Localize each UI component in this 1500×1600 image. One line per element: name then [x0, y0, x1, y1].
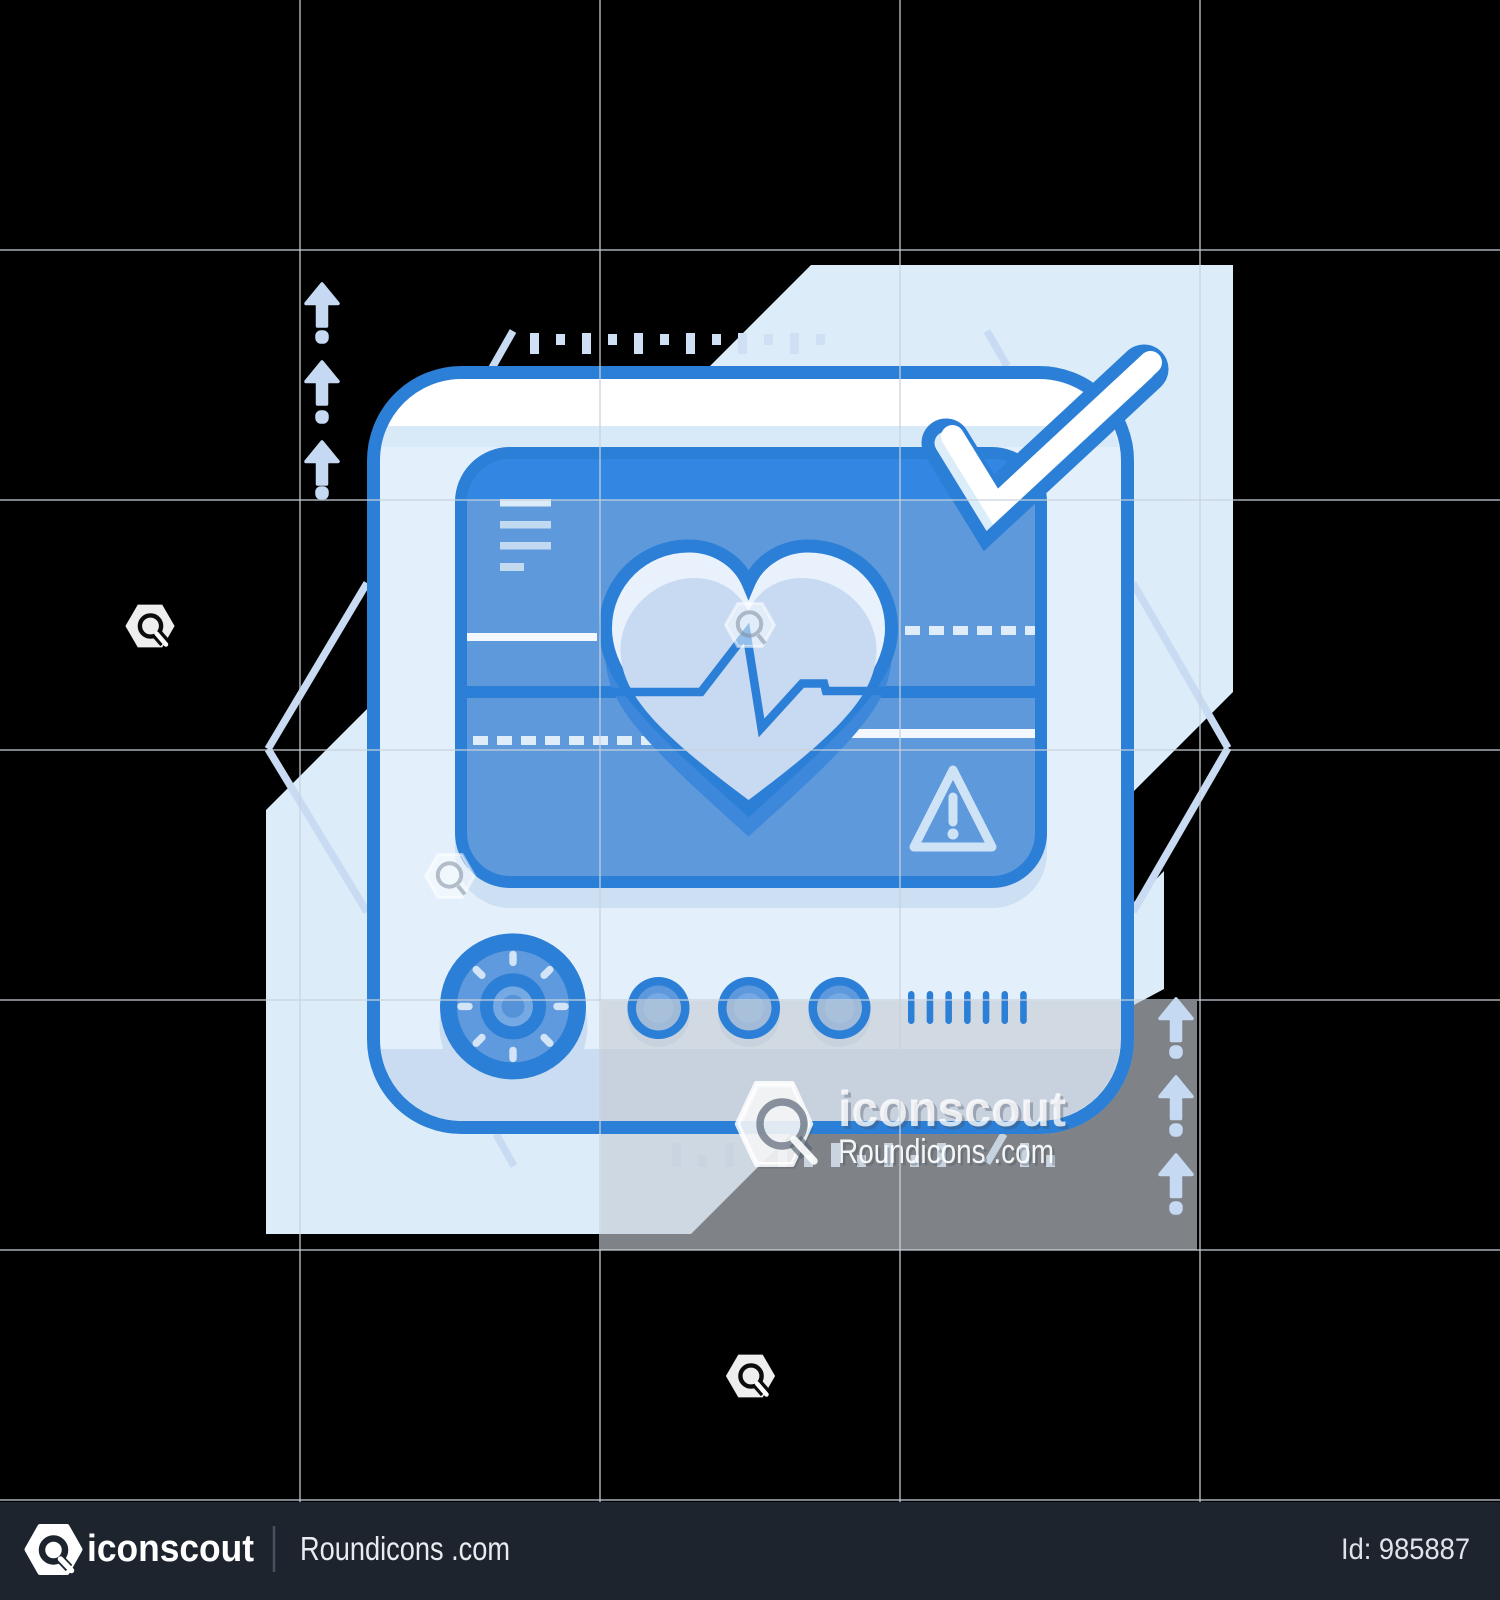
svg-text:Roundicons .com: Roundicons .com: [838, 1133, 1054, 1171]
svg-text:Roundicons .com: Roundicons .com: [300, 1530, 510, 1567]
svg-text:iconscout: iconscout: [87, 1528, 254, 1570]
svg-text:Id: 985887: Id: 985887: [1341, 1533, 1470, 1566]
svg-text:iconscout: iconscout: [838, 1081, 1066, 1137]
